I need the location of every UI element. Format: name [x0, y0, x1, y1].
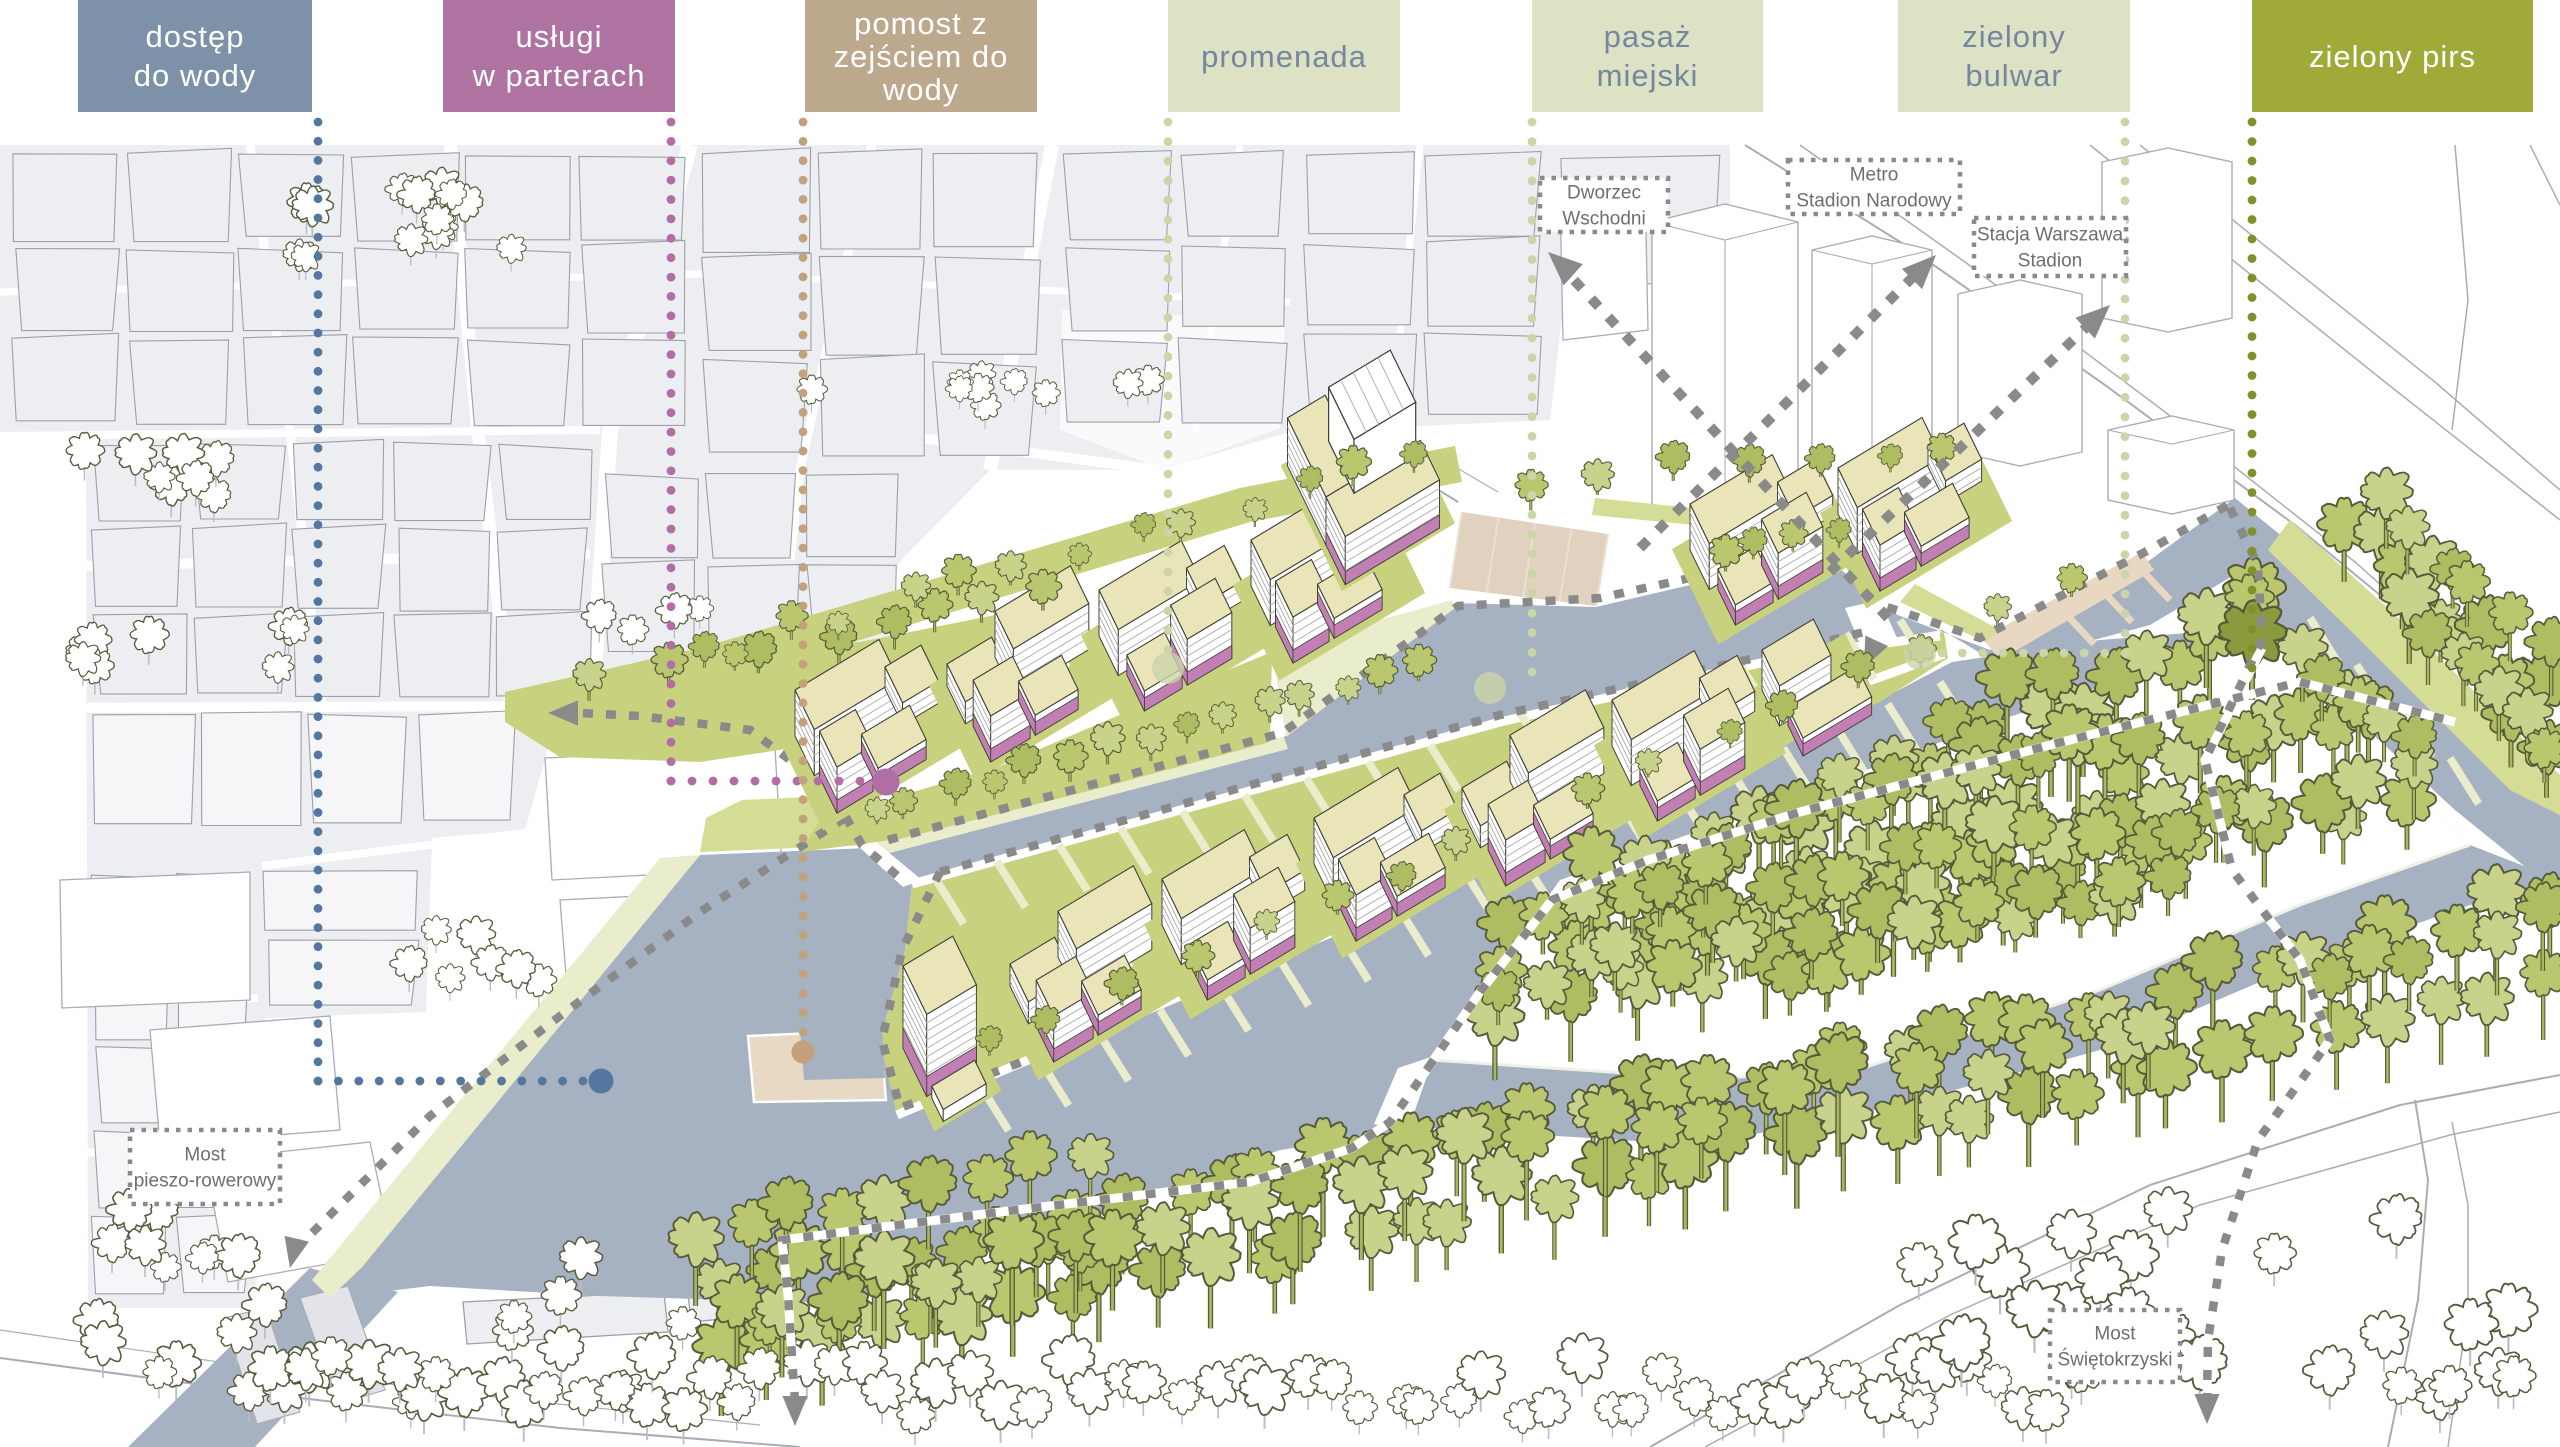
svg-text:Stacja Warszawa: Stacja Warszawa: [1977, 225, 2123, 246]
svg-text:wody: wody: [882, 72, 959, 107]
svg-text:usługi: usługi: [516, 19, 603, 54]
svg-text:do wody: do wody: [134, 58, 256, 93]
svg-text:promenada: promenada: [1201, 39, 1367, 74]
svg-text:zielony: zielony: [1962, 19, 2066, 54]
svg-text:dostęp: dostęp: [145, 19, 244, 54]
svg-text:bulwar: bulwar: [1965, 58, 2062, 93]
svg-text:Metro: Metro: [1850, 165, 1899, 186]
svg-text:w parterach: w parterach: [472, 58, 646, 93]
svg-text:Dworzec: Dworzec: [1567, 183, 1641, 204]
svg-text:Stadion Narodowy: Stadion Narodowy: [1796, 191, 1952, 212]
svg-text:pomost z: pomost z: [854, 6, 988, 41]
svg-text:Stadion: Stadion: [2018, 251, 2082, 272]
svg-text:pieszo-rowerowy: pieszo-rowerowy: [134, 1171, 277, 1192]
svg-text:zielony pirs: zielony pirs: [2309, 39, 2476, 74]
svg-text:Most: Most: [2094, 1324, 2136, 1345]
svg-text:miejski: miejski: [1597, 58, 1699, 93]
svg-text:Wschodni: Wschodni: [1562, 209, 1645, 230]
svg-text:Most: Most: [184, 1145, 226, 1166]
svg-text:pasaż: pasaż: [1604, 19, 1692, 54]
svg-text:zejściem do: zejściem do: [834, 39, 1009, 74]
svg-text:Świętokrzyski: Świętokrzyski: [2057, 1349, 2172, 1371]
